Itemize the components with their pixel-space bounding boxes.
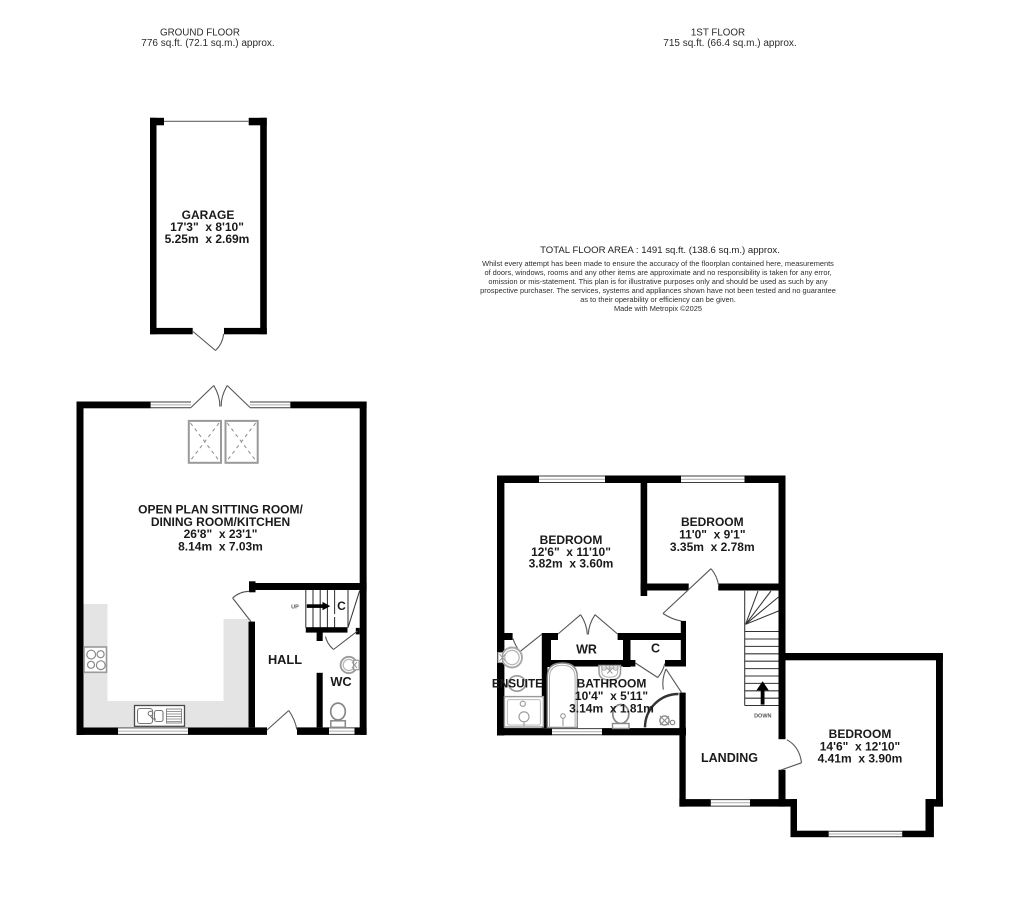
svg-text:8.14m x 7.03m: 8.14m x 7.03m — [178, 539, 263, 553]
svg-text:as to their operability or eff: as to their operability or efficiency ca… — [580, 295, 736, 304]
svg-text:4.41m x 3.90m: 4.41m x 3.90m — [818, 752, 903, 766]
svg-text:Made with Metropix ©2025: Made with Metropix ©2025 — [614, 304, 702, 313]
svg-text:3.82m x 3.60m: 3.82m x 3.60m — [529, 557, 614, 571]
svg-text:DOWN: DOWN — [754, 714, 771, 720]
svg-text:TOTAL FLOOR AREA : 1491 sq.ft.: TOTAL FLOOR AREA : 1491 sq.ft. (138.6 sq… — [540, 245, 780, 256]
svg-text:WR: WR — [576, 643, 597, 657]
svg-text:LANDING: LANDING — [701, 751, 758, 765]
svg-text:GROUND FLOOR: GROUND FLOOR — [160, 28, 240, 39]
svg-text:prospective purchaser. The ser: prospective purchaser. The services, sys… — [480, 286, 836, 295]
svg-text:C: C — [337, 599, 346, 613]
svg-text:776 sq.ft. (72.1 sq.m.) approx: 776 sq.ft. (72.1 sq.m.) approx. — [141, 38, 274, 49]
svg-text:UP: UP — [291, 605, 299, 611]
svg-text:5.25m x 2.69m: 5.25m x 2.69m — [165, 232, 250, 246]
svg-text:1ST FLOOR: 1ST FLOOR — [691, 28, 745, 39]
svg-text:WC: WC — [330, 674, 351, 689]
svg-text:715 sq.ft. (66.4 sq.m.) approx: 715 sq.ft. (66.4 sq.m.) approx. — [663, 38, 796, 49]
svg-text:3.14m x 1.81m: 3.14m x 1.81m — [569, 701, 654, 715]
svg-text:HALL: HALL — [268, 652, 302, 667]
svg-text:3.35m x 2.78m: 3.35m x 2.78m — [670, 540, 755, 554]
svg-text:Whilst every attempt has been: Whilst every attempt has been made to en… — [482, 259, 834, 268]
svg-text:of doors, windows, rooms and a: of doors, windows, rooms and any other i… — [484, 268, 831, 277]
svg-text:C: C — [651, 642, 660, 656]
svg-text:ENSUITE: ENSUITE — [492, 677, 543, 691]
svg-text:omission or mis-statement. Thi: omission or mis-statement. This plan is … — [488, 277, 827, 286]
